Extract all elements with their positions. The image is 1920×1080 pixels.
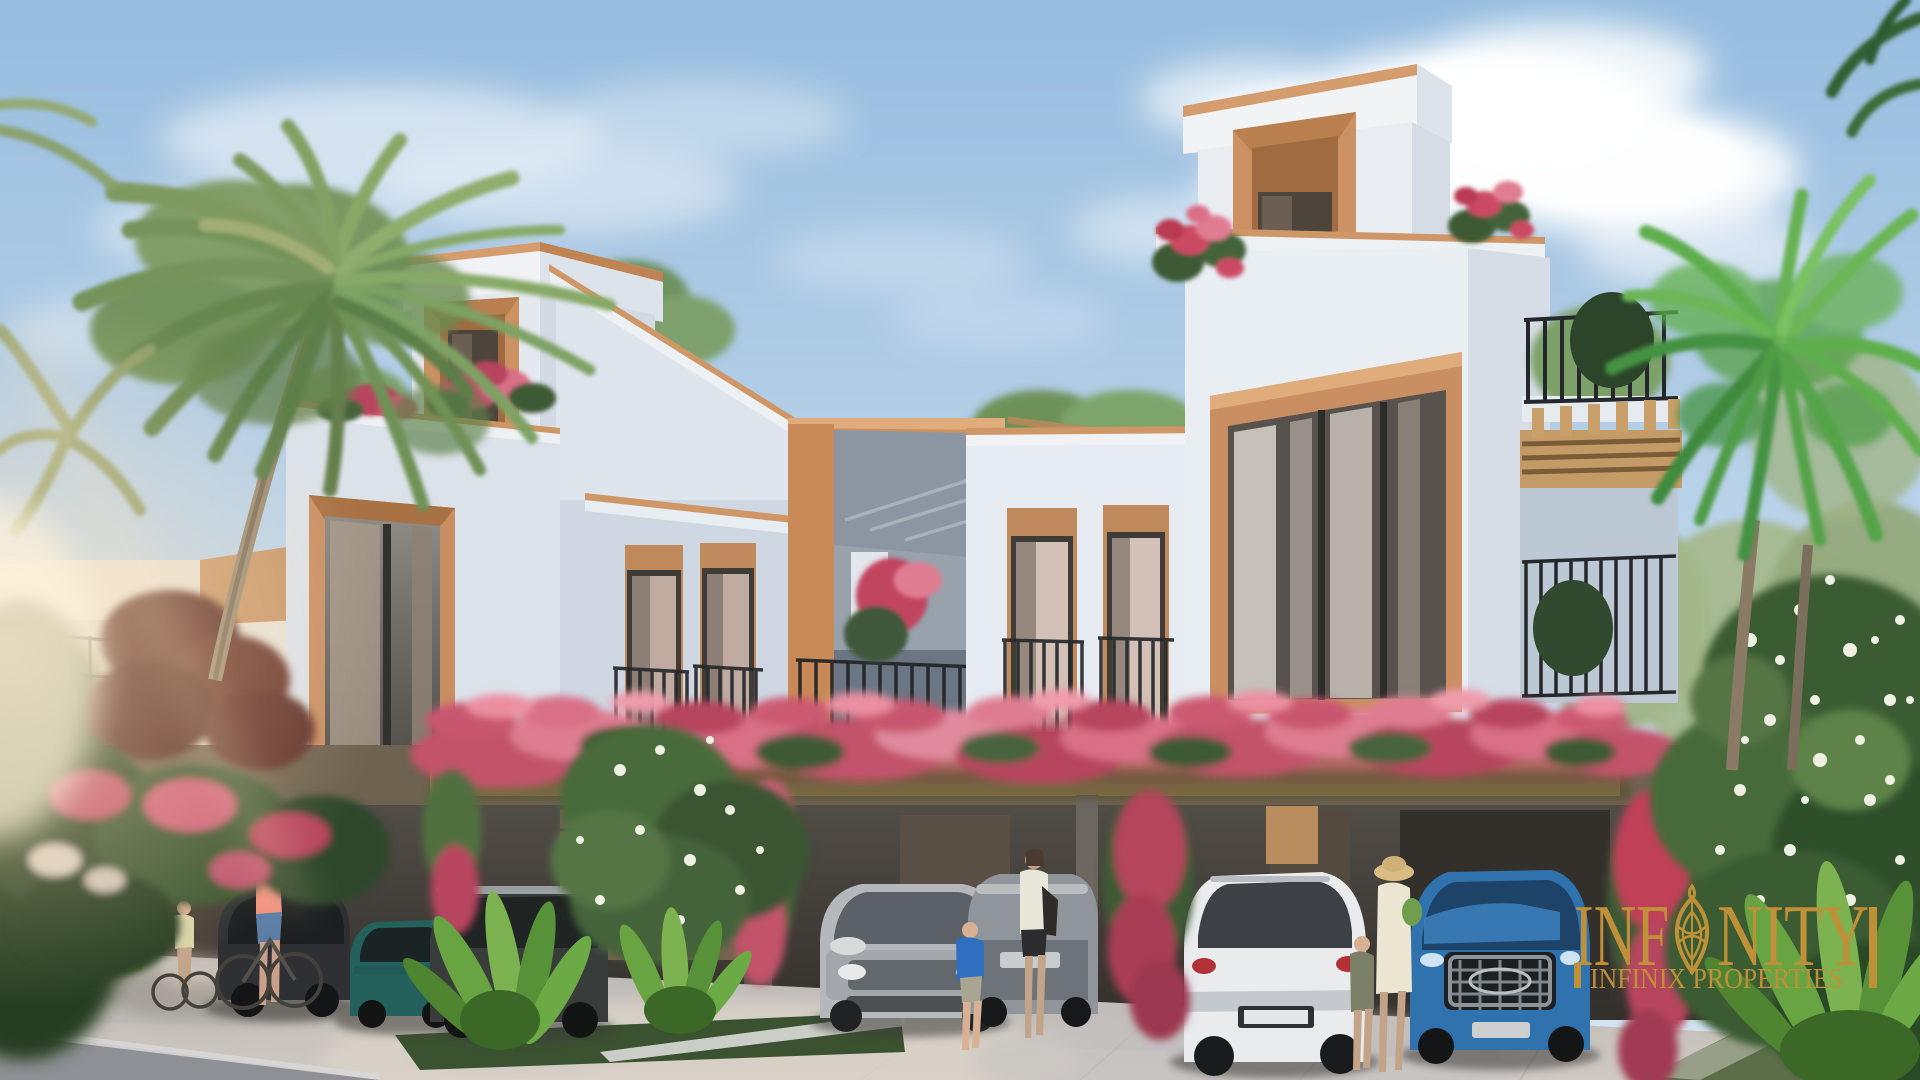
svg-text:INFINIX PROPERTIES: INFINIX PROPERTIES bbox=[1590, 964, 1843, 995]
